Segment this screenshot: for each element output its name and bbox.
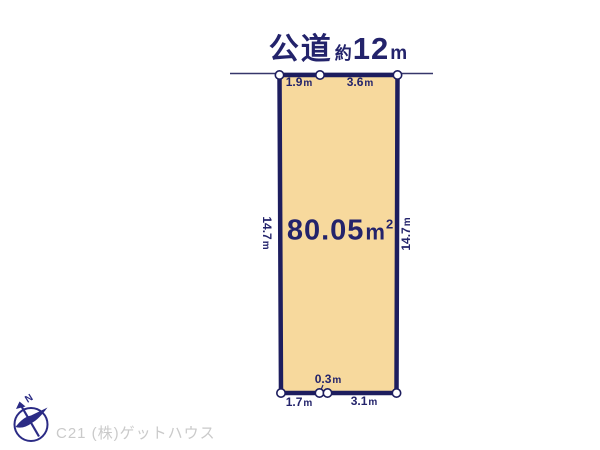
north-label: N	[23, 392, 35, 405]
bottom-segment-1-value: 1.7	[286, 395, 303, 409]
left-side-unit: m	[260, 241, 271, 250]
company-watermark: C21 (株)ゲットハウス	[56, 422, 216, 443]
boundary-point-top-mid	[316, 71, 324, 79]
bottom-segment-3-unit: m	[368, 397, 377, 408]
right-side-unit: m	[402, 217, 413, 226]
north-arrow-head	[16, 402, 26, 410]
bottom-segment-2-unit: m	[332, 375, 341, 386]
boundary-point-bottom-mid2	[323, 389, 331, 397]
boundary-point-bottom-right	[392, 389, 400, 397]
top-segment-2-label: 3.6m	[347, 75, 374, 89]
compass-icon: N	[8, 388, 58, 446]
bottom-segment-1-label: 1.7m	[286, 395, 313, 409]
bottom-segment-1-unit: m	[303, 398, 312, 409]
boundary-point-top-right	[393, 71, 401, 79]
boundary-point-bottom-left	[277, 389, 285, 397]
left-side-value: 14.7	[260, 216, 274, 239]
right-side-value: 14.7	[399, 227, 413, 250]
bottom-segment-3-value: 3.1	[351, 394, 368, 408]
left-side-label: 14.7m	[260, 216, 274, 249]
boundary-point-top-left	[275, 71, 283, 79]
right-side-label: 14.7m	[399, 217, 413, 250]
top-segment-1-label: 1.9m	[286, 75, 313, 89]
area-label: 80.05 m 2	[287, 215, 393, 248]
land-plot-diagram: 公道 約 12 m 1.9m 3.6m 14.7m 14.7m	[0, 0, 600, 450]
boundary-point-bottom-mid1	[315, 389, 323, 397]
area-unit: m	[365, 220, 385, 246]
top-segment-1-unit: m	[303, 78, 312, 89]
top-segment-1-value: 1.9	[286, 75, 303, 89]
bottom-segment-2-value: 0.3	[315, 372, 332, 386]
bottom-segment-3-label: 3.1m	[351, 394, 378, 408]
area-value: 80.05	[287, 215, 365, 248]
top-segment-2-value: 3.6	[347, 75, 364, 89]
top-segment-2-unit: m	[364, 78, 373, 89]
bottom-segment-2-label: 0.3m	[315, 372, 342, 386]
area-unit-superscript: 2	[386, 217, 393, 232]
